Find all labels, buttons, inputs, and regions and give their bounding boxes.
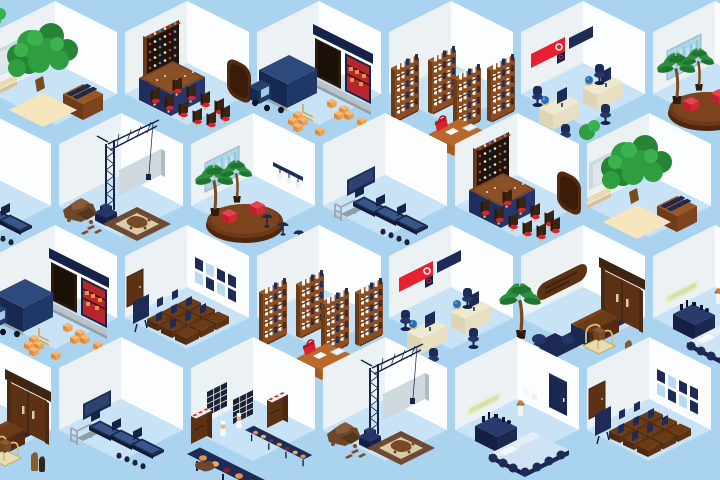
isometric-pattern-illustration — [0, 0, 720, 480]
